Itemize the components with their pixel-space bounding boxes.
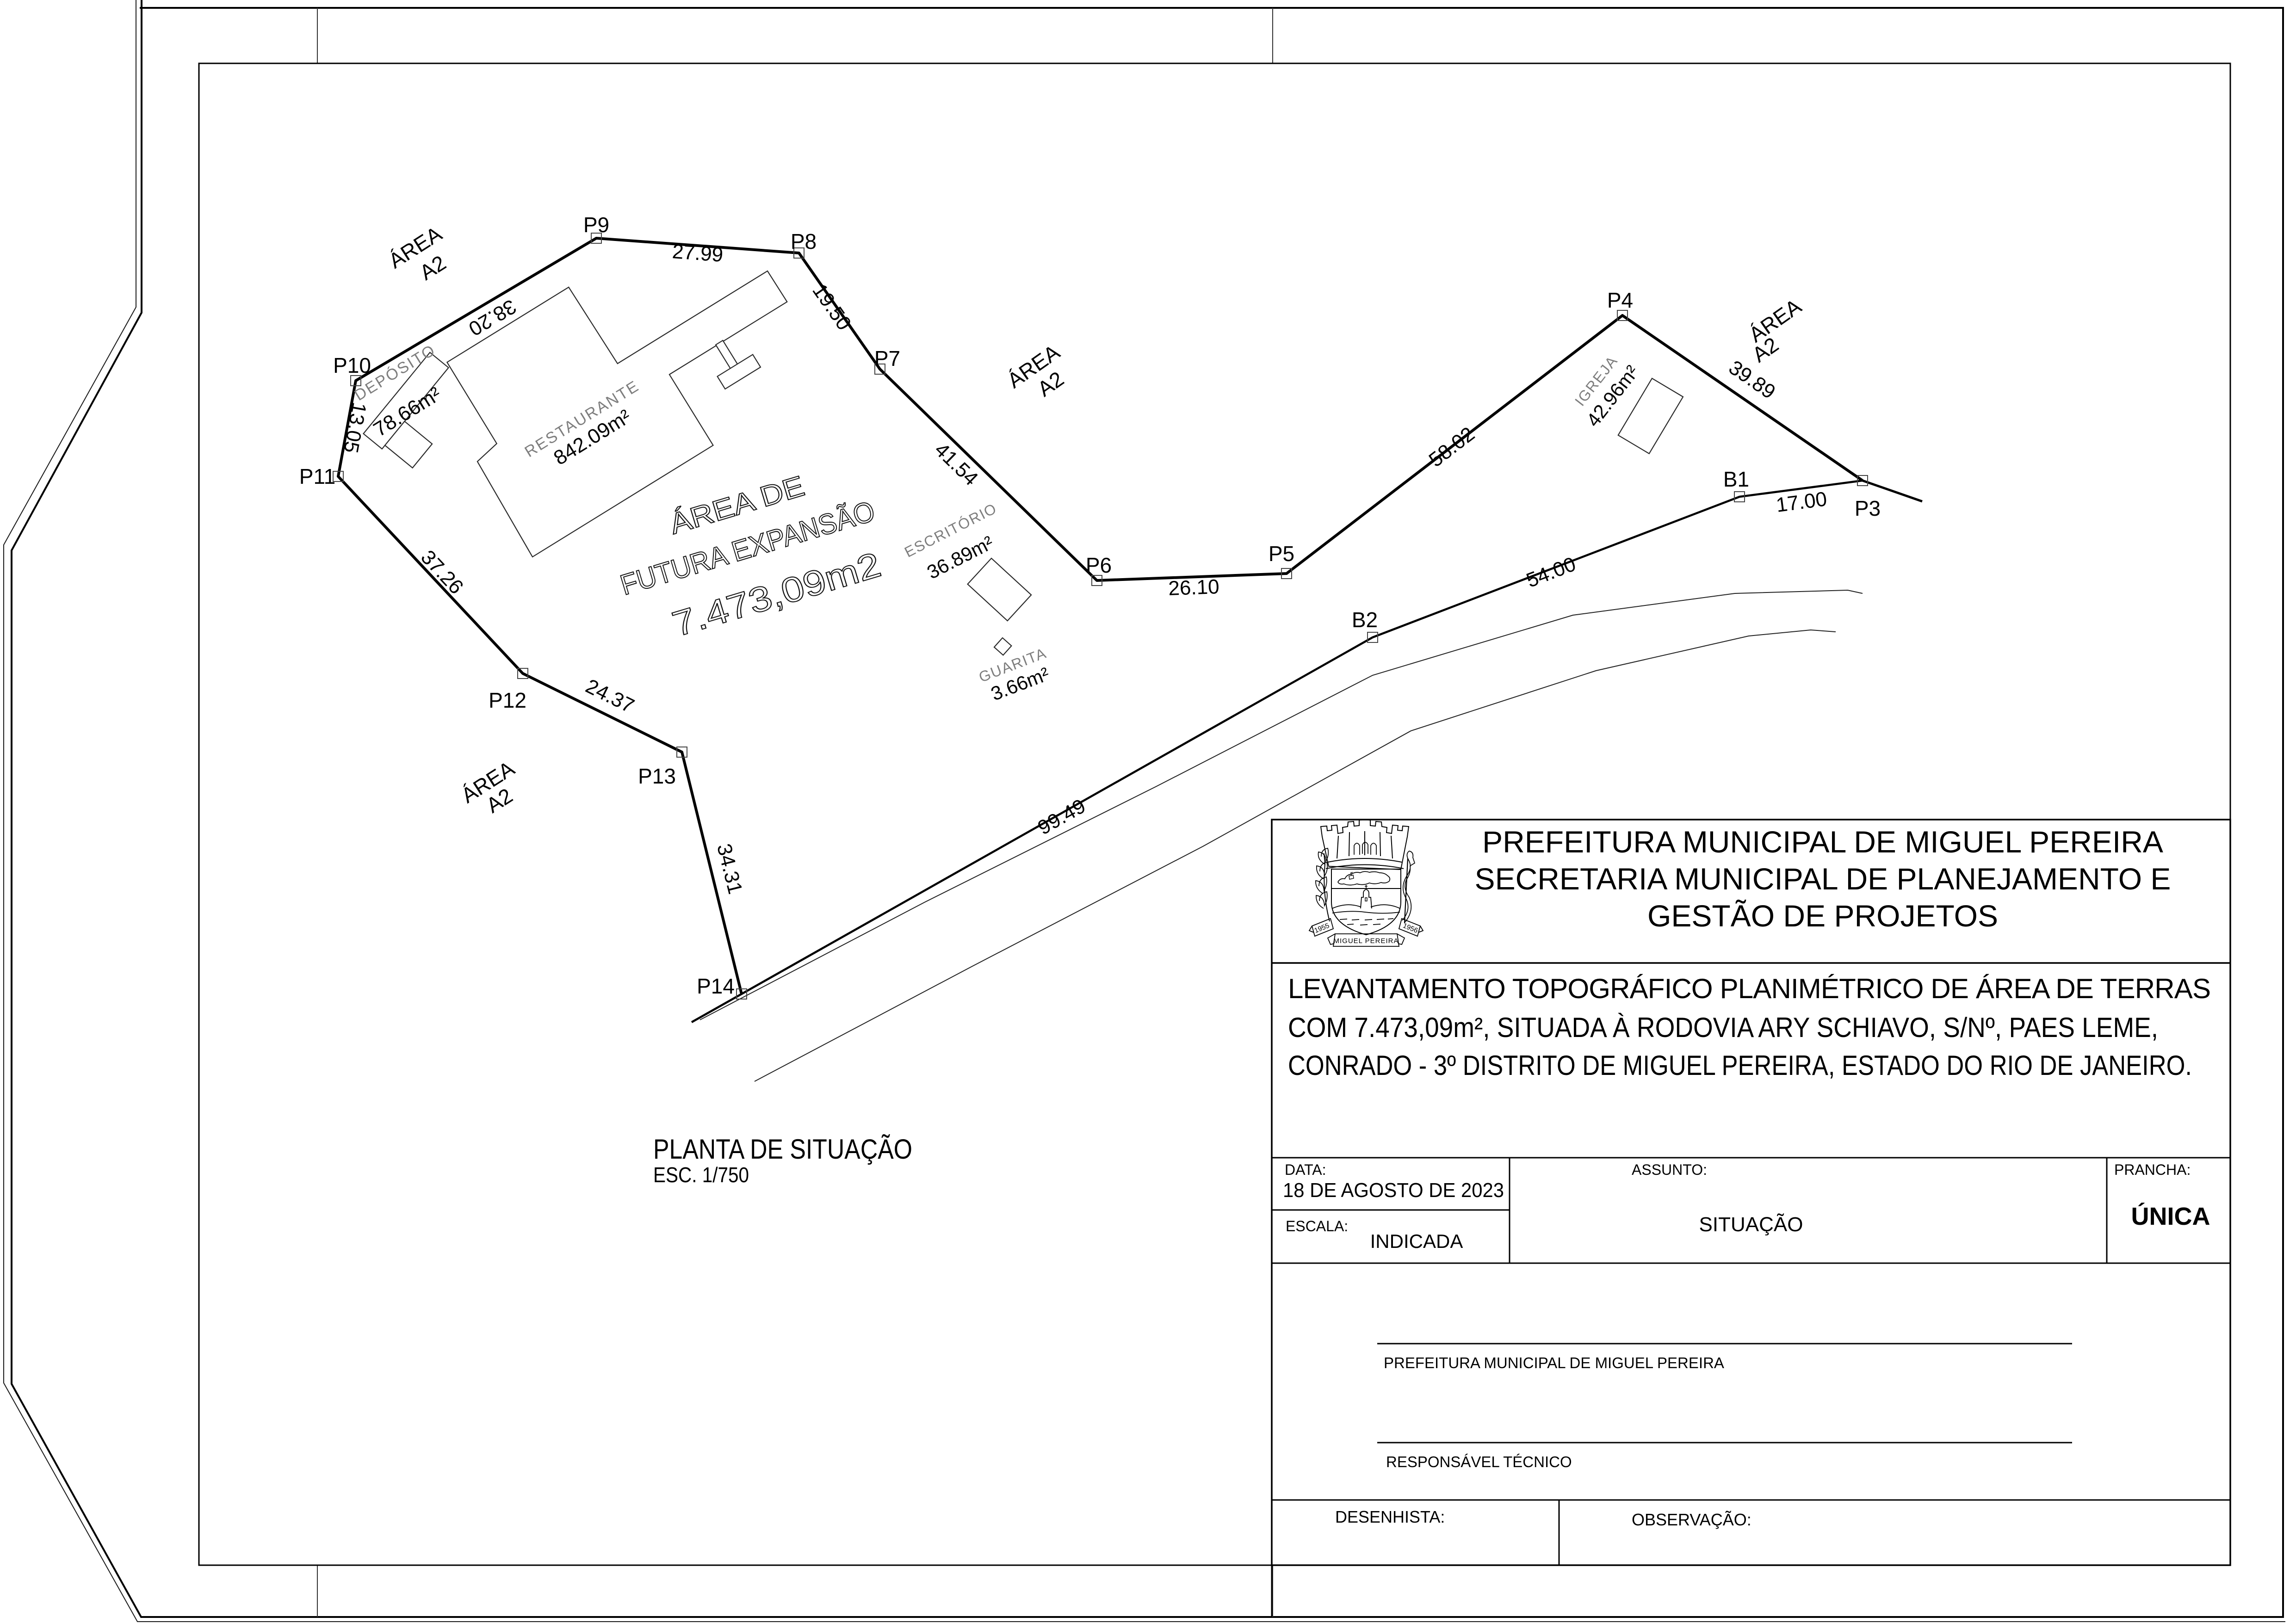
svg-text:DESENHISTA:: DESENHISTA:: [1335, 1507, 1445, 1526]
svg-text:LEVANTAMENTO TOPOGRÁFICO PLANI: LEVANTAMENTO TOPOGRÁFICO PLANIMÉTRICO DE…: [1288, 973, 2211, 1004]
svg-text:INDICADA: INDICADA: [1370, 1230, 1463, 1252]
svg-text:GESTÃO DE PROJETOS: GESTÃO DE PROJETOS: [1647, 899, 1998, 933]
svg-text:26.10: 26.10: [1168, 575, 1220, 600]
svg-text:PRANCHA:: PRANCHA:: [2114, 1161, 2191, 1178]
svg-text:COM 7.473,09m², SITUADA À RODO: COM 7.473,09m², SITUADA À RODOVIA ARY SC…: [1288, 1012, 2158, 1043]
svg-text:P7: P7: [874, 346, 900, 370]
svg-text:PLANTA DE SITUAÇÃO: PLANTA DE SITUAÇÃO: [653, 1134, 912, 1165]
svg-text:PREFEITURA MUNICIPAL DE MIGUEL: PREFEITURA MUNICIPAL DE MIGUEL PEREIRA: [1384, 1354, 1724, 1371]
svg-text:18 DE AGOSTO DE 2023: 18 DE AGOSTO DE 2023: [1283, 1179, 1504, 1202]
svg-text:PREFEITURA MUNICIPAL DE MIGUEL: PREFEITURA MUNICIPAL DE MIGUEL PEREIRA: [1482, 825, 2163, 859]
svg-text:B1: B1: [1723, 467, 1749, 491]
svg-text:CONRADO - 3º DISTRITO DE MIGUE: CONRADO - 3º DISTRITO DE MIGUEL PEREIRA,…: [1288, 1050, 2192, 1081]
svg-text:ASSUNTO:: ASSUNTO:: [1632, 1161, 1707, 1178]
svg-text:P11: P11: [299, 464, 335, 488]
svg-text:P5: P5: [1269, 542, 1294, 566]
svg-text:ESCALA:: ESCALA:: [1286, 1218, 1348, 1234]
svg-text:P3: P3: [1855, 496, 1881, 520]
svg-text:P4: P4: [1607, 288, 1633, 312]
svg-text:B2: B2: [1352, 608, 1378, 632]
svg-text:P10: P10: [333, 353, 371, 377]
svg-text:P13: P13: [638, 764, 676, 788]
svg-text:ÚNICA: ÚNICA: [2131, 1203, 2210, 1230]
svg-text:DATA:: DATA:: [1285, 1161, 1326, 1178]
svg-text:P8: P8: [791, 229, 817, 253]
svg-text:MIGUEL PEREIRA: MIGUEL PEREIRA: [1334, 937, 1399, 945]
svg-text:27.99: 27.99: [671, 240, 724, 266]
svg-text:SECRETARIA MUNICIPAL DE PLANEJ: SECRETARIA MUNICIPAL DE PLANEJAMENTO E: [1475, 862, 2171, 896]
svg-text:P6: P6: [1086, 553, 1112, 577]
svg-text:P12: P12: [489, 688, 526, 712]
svg-text:ESC. 1/750: ESC. 1/750: [653, 1163, 749, 1187]
svg-text:P14: P14: [697, 974, 735, 998]
svg-text:P9: P9: [583, 213, 609, 237]
svg-text:SITUAÇÃO: SITUAÇÃO: [1699, 1213, 1803, 1236]
svg-text:OBSERVAÇÃO:: OBSERVAÇÃO:: [1632, 1510, 1751, 1529]
svg-text:RESPONSÁVEL TÉCNICO: RESPONSÁVEL TÉCNICO: [1386, 1453, 1572, 1470]
